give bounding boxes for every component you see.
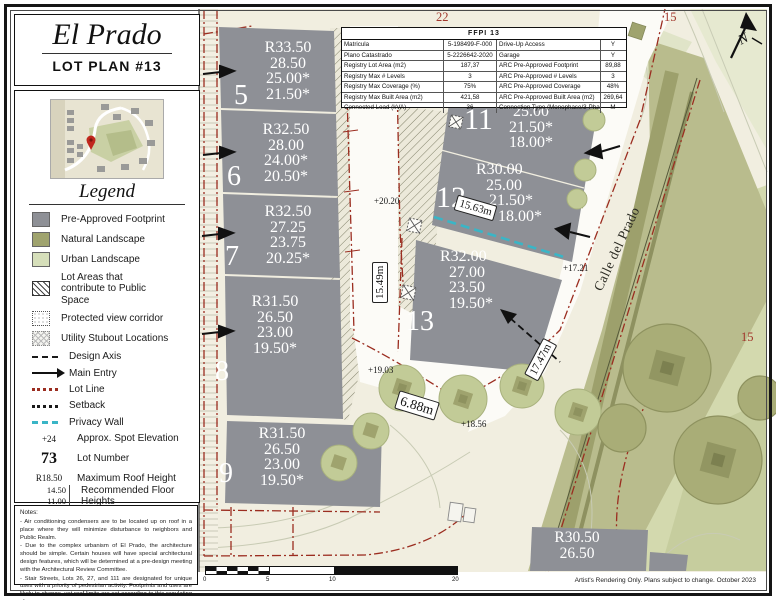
table-row: Matricula 5-198499-F-000 Drive-Up Access…: [342, 40, 626, 51]
row-value: 48%: [601, 82, 625, 92]
row-label: Drive-Up Access: [497, 40, 601, 50]
main-entry-arrow-icon: [32, 372, 58, 374]
legend-label: Protected view corridor: [61, 313, 163, 324]
scale-tick-0: 0: [203, 577, 206, 583]
privacy-wall-line-icon: [32, 421, 58, 424]
lot-se2-footprint: [649, 552, 688, 571]
row-value: 5-2226642-2020: [444, 51, 497, 61]
legend-item-main-entry: Main Entry: [15, 365, 199, 381]
row-value: 5-198499-F-000: [444, 40, 497, 50]
lot-7-footprint: [223, 194, 340, 278]
legend-label: Setback: [69, 400, 105, 411]
lot-8-footprint: [225, 276, 343, 419]
row-label: Registry Max Built Area (m2): [342, 93, 444, 103]
legend-item-utility: Utility Stubout Locations: [15, 329, 199, 349]
legend-label: Natural Landscape: [61, 234, 145, 245]
legend-panel: Legend Pre-Approved Footprint Natural La…: [14, 90, 200, 503]
legend-label: Maximum Roof Height: [77, 473, 176, 484]
legend-item-setback: Setback: [15, 398, 199, 414]
row-value: 269,64: [601, 93, 625, 103]
table-title: FFPI 13: [342, 28, 626, 40]
title-divider: [42, 53, 172, 54]
legend-item-design-axis: Design Axis: [15, 349, 199, 365]
legend-label: Design Axis: [69, 351, 121, 362]
row-label: Connection Type (Monophase/3-Phase): [497, 103, 601, 113]
legend-label: Utility Stubout Locations: [61, 333, 168, 344]
floor-height-value: 14.50: [47, 485, 66, 495]
scale-tick-5: 5: [266, 577, 269, 583]
notes-title: Notes:: [20, 509, 192, 517]
row-value: Y: [601, 40, 625, 50]
legend-item-spot-elevation: +24 Approx. Spot Elevation: [15, 431, 199, 447]
design-axis-line-icon: [32, 356, 58, 358]
legend-item-floor-heights: 14.50 11.00 Recommended Floor Heights: [15, 484, 199, 507]
row-value: Y: [601, 51, 625, 61]
page-title: LOT PLAN #13: [15, 58, 199, 74]
table-row: Registry Lot Area (m2) 187,37 ARC Pre-Ap…: [342, 61, 626, 72]
note-paragraph: - Air conditioning condensers are to be …: [20, 519, 192, 542]
table-row: Plano Catastrado 5-2226642-2020 Garage Y: [342, 51, 626, 62]
legend-item-privacy-wall: Privacy Wall: [15, 414, 199, 430]
row-value: M: [601, 103, 625, 113]
table-row: Registry Max Coverage (%) 75% ARC Pre-Ap…: [342, 82, 626, 93]
note-paragraph: - Due to the complex urbanism of El Prad…: [20, 543, 192, 574]
scale-bar-checker: [206, 567, 269, 574]
legend-title: Legend: [15, 181, 199, 203]
location-thumbnail-map: [50, 99, 164, 179]
notes-panel: Notes: - Air conditioning condensers are…: [14, 505, 198, 585]
legend-item-lot-line: Lot Line: [15, 381, 199, 397]
table-row: Registry Max Built Area (m2) 421,58 ARC …: [342, 93, 626, 104]
legend-item-lot-number: 73 Lot Number: [15, 447, 199, 470]
footprint-swatch-icon: [32, 212, 50, 227]
legend-label: Lot Number: [77, 453, 129, 464]
legend-divider: [29, 204, 185, 205]
lot-6-footprint: [221, 110, 338, 196]
lot-5-footprint: [219, 27, 336, 112]
urban-swatch-icon: [32, 252, 50, 267]
legend-label: Urban Landscape: [61, 254, 140, 265]
row-value: 89,88: [601, 61, 625, 71]
stair-street-strip: [199, 9, 218, 572]
legend-label: Recommended Floor Heights: [81, 485, 195, 507]
row-label: Garage: [497, 51, 601, 61]
row-label: Connected Load (kVA): [342, 103, 444, 113]
legend-item-footprint: Pre-Approved Footprint: [15, 209, 199, 229]
table-row: Registry Max # Levels 3 ARC Pre-Approved…: [342, 72, 626, 83]
utility-swatch-icon: [32, 331, 50, 346]
row-label: ARC Pre-Approved Coverage: [497, 82, 601, 92]
spot-elevation-sample: +24: [32, 434, 66, 444]
legend-item-urban: Urban Landscape: [15, 249, 199, 269]
row-label: Registry Max # Levels: [342, 72, 444, 82]
table-row: Connected Load (kVA) 36 Connection Type …: [342, 103, 626, 113]
row-value: 3: [444, 72, 497, 82]
scale-bar-black-segment: [334, 567, 457, 574]
hatch-swatch-icon: [32, 281, 50, 296]
row-value: 421,58: [444, 93, 497, 103]
row-value: 36: [444, 103, 497, 113]
scale-bar: [205, 566, 458, 575]
disclaimer-text: Artist's Rendering Only. Plans subject t…: [575, 577, 756, 584]
scale-tick-10: 10: [329, 577, 336, 583]
view-corridor-swatch-icon: [32, 311, 50, 326]
lot-line-icon: [32, 388, 58, 391]
legend-label: Pre-Approved Footprint: [61, 214, 165, 225]
natural-swatch-icon: [32, 232, 50, 247]
lot-se-footprint: [530, 527, 648, 571]
row-label: Registry Lot Area (m2): [342, 61, 444, 71]
legend-label: Main Entry: [69, 368, 117, 379]
legend-label: Privacy Wall: [69, 417, 124, 428]
legend-label: Approx. Spot Elevation: [77, 433, 179, 444]
row-label: ARC Pre-Approved # Levels: [497, 72, 601, 82]
row-label: ARC Pre-Approved Footprint: [497, 61, 601, 71]
note-paragraph: - Stair Streets, Lots 26, 27, and 111 ar…: [20, 576, 192, 600]
legend-label: Lot Line: [69, 384, 105, 395]
row-value: 75%: [444, 82, 497, 92]
legend-item-view-corridor: Protected view corridor: [15, 308, 199, 328]
setback-line-icon: [32, 405, 58, 408]
lot-number-sample: 73: [32, 450, 66, 468]
row-value: 187,37: [444, 61, 497, 71]
project-title: El Prado: [15, 18, 199, 52]
lot-data-table: FFPI 13 Matricula 5-198499-F-000 Drive-U…: [341, 27, 627, 108]
legend-item-natural: Natural Landscape: [15, 229, 199, 249]
scale-bar-white-segment: [269, 567, 334, 574]
floor-heights-sample: 14.50 11.00: [32, 485, 70, 506]
row-label: Plano Catastrado: [342, 51, 444, 61]
row-value: 3: [601, 72, 625, 82]
row-label: Registry Max Coverage (%): [342, 82, 444, 92]
legend-item-public-space: Lot Areas that contribute to Public Spac…: [15, 270, 199, 309]
row-label: ARC Pre-Approved Built Area (m2): [497, 93, 601, 103]
roof-height-sample: R18.50: [32, 473, 66, 483]
title-block: El Prado LOT PLAN #13: [14, 14, 200, 86]
row-label: Matricula: [342, 40, 444, 50]
legend-label: Lot Areas that contribute to Public Spac…: [61, 272, 167, 306]
scale-tick-20: 20: [452, 577, 459, 583]
legend-item-roof-height: R18.50 Maximum Roof Height: [15, 470, 199, 484]
